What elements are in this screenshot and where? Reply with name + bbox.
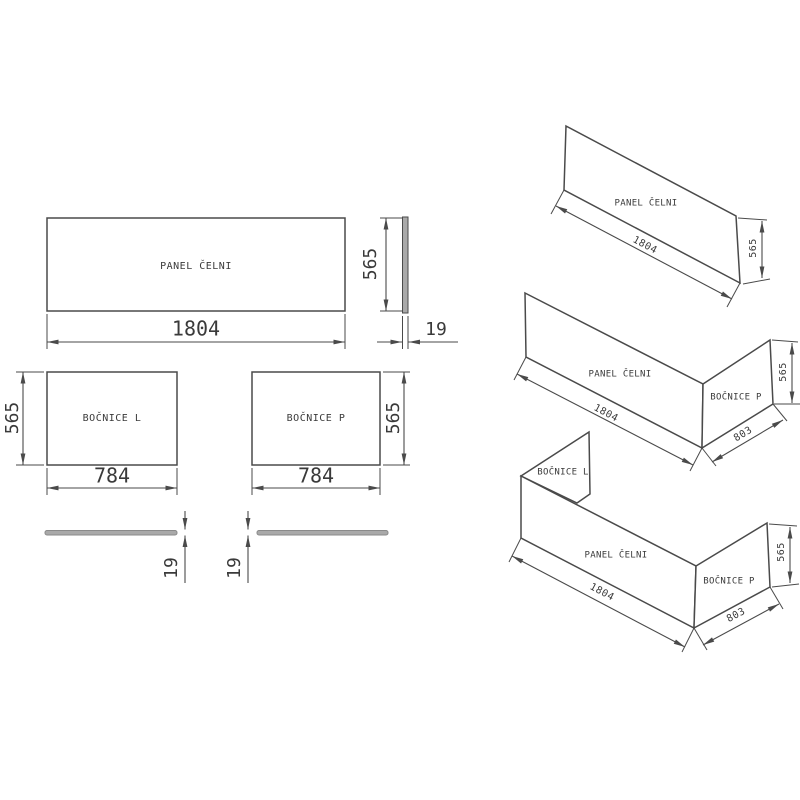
extension-line [509, 538, 521, 562]
extension-line [690, 448, 702, 471]
dim-panel-height: 565 [776, 542, 787, 562]
dim-panel-thickness: 19 [224, 557, 245, 579]
side-left-label: BOČNICE L [537, 466, 588, 478]
extension-line [514, 357, 526, 380]
extension-line [694, 628, 707, 650]
dim-panel-thickness: 19 [161, 557, 182, 579]
extension-line [769, 524, 797, 526]
ortho-front-panel-edge-view: 565 19 [360, 217, 458, 349]
ortho-front-panel-view: PANEL ČELNI 1804 [47, 218, 345, 349]
front-panel-label: PANEL ČELNI [589, 368, 652, 380]
front-panel-label: PANEL ČELNI [585, 549, 648, 561]
side-right-label: BOČNICE P [710, 391, 762, 403]
side-right-label: BOČNICE P [287, 411, 346, 424]
extension-line [682, 628, 694, 652]
extension-line [743, 279, 770, 284]
extension-line [772, 340, 798, 342]
iso-u-assembly-view: BOČNICE L PANEL ČELNI BOČNICE P 1804 803… [509, 432, 799, 652]
side-right-edge [257, 531, 388, 536]
dim-front-length: 1804 [592, 402, 620, 424]
iso-front-panel-view: PANEL ČELNI 1804 565 [551, 126, 770, 307]
dim-panel-height: 565 [360, 248, 381, 281]
dim-side-length: 784 [94, 464, 130, 488]
dim-front-length: 1804 [172, 317, 220, 341]
extension-line [702, 448, 716, 466]
extension-line [738, 218, 767, 220]
side-left-edge [45, 531, 177, 536]
extension-line [772, 584, 799, 587]
side-left-label: BOČNICE L [83, 411, 142, 424]
ortho-side-panel-edge-views: 19 19 [45, 511, 388, 583]
dim-panel-height: 565 [2, 402, 23, 435]
ortho-side-left-view: BOČNICE L 565 784 [2, 372, 177, 495]
extension-line [551, 190, 564, 214]
technical-drawing-canvas: PANEL ČELNI 1804 565 19 BOČNICE L 565 78… [0, 0, 800, 800]
iso-corner-assembly-view: PANEL ČELNI BOČNICE P 1804 803 565 [514, 293, 800, 471]
drawing-sheet: PANEL ČELNI 1804 565 19 BOČNICE L 565 78… [0, 0, 800, 800]
dim-panel-height: 565 [748, 238, 759, 258]
front-panel-label: PANEL ČELNI [615, 197, 678, 209]
dim-panel-thickness: 19 [425, 319, 447, 340]
dim-panel-height: 565 [383, 402, 404, 435]
dim-side-length: 784 [298, 464, 334, 488]
extension-line [773, 404, 787, 421]
ortho-side-right-view: BOČNICE P 565 784 [252, 372, 410, 495]
front-panel-edge [403, 217, 409, 313]
side-right-label: BOČNICE P [703, 575, 755, 587]
front-panel-label: PANEL ČELNI [160, 259, 232, 272]
extension-line [727, 283, 740, 307]
dim-panel-height: 565 [778, 362, 789, 382]
